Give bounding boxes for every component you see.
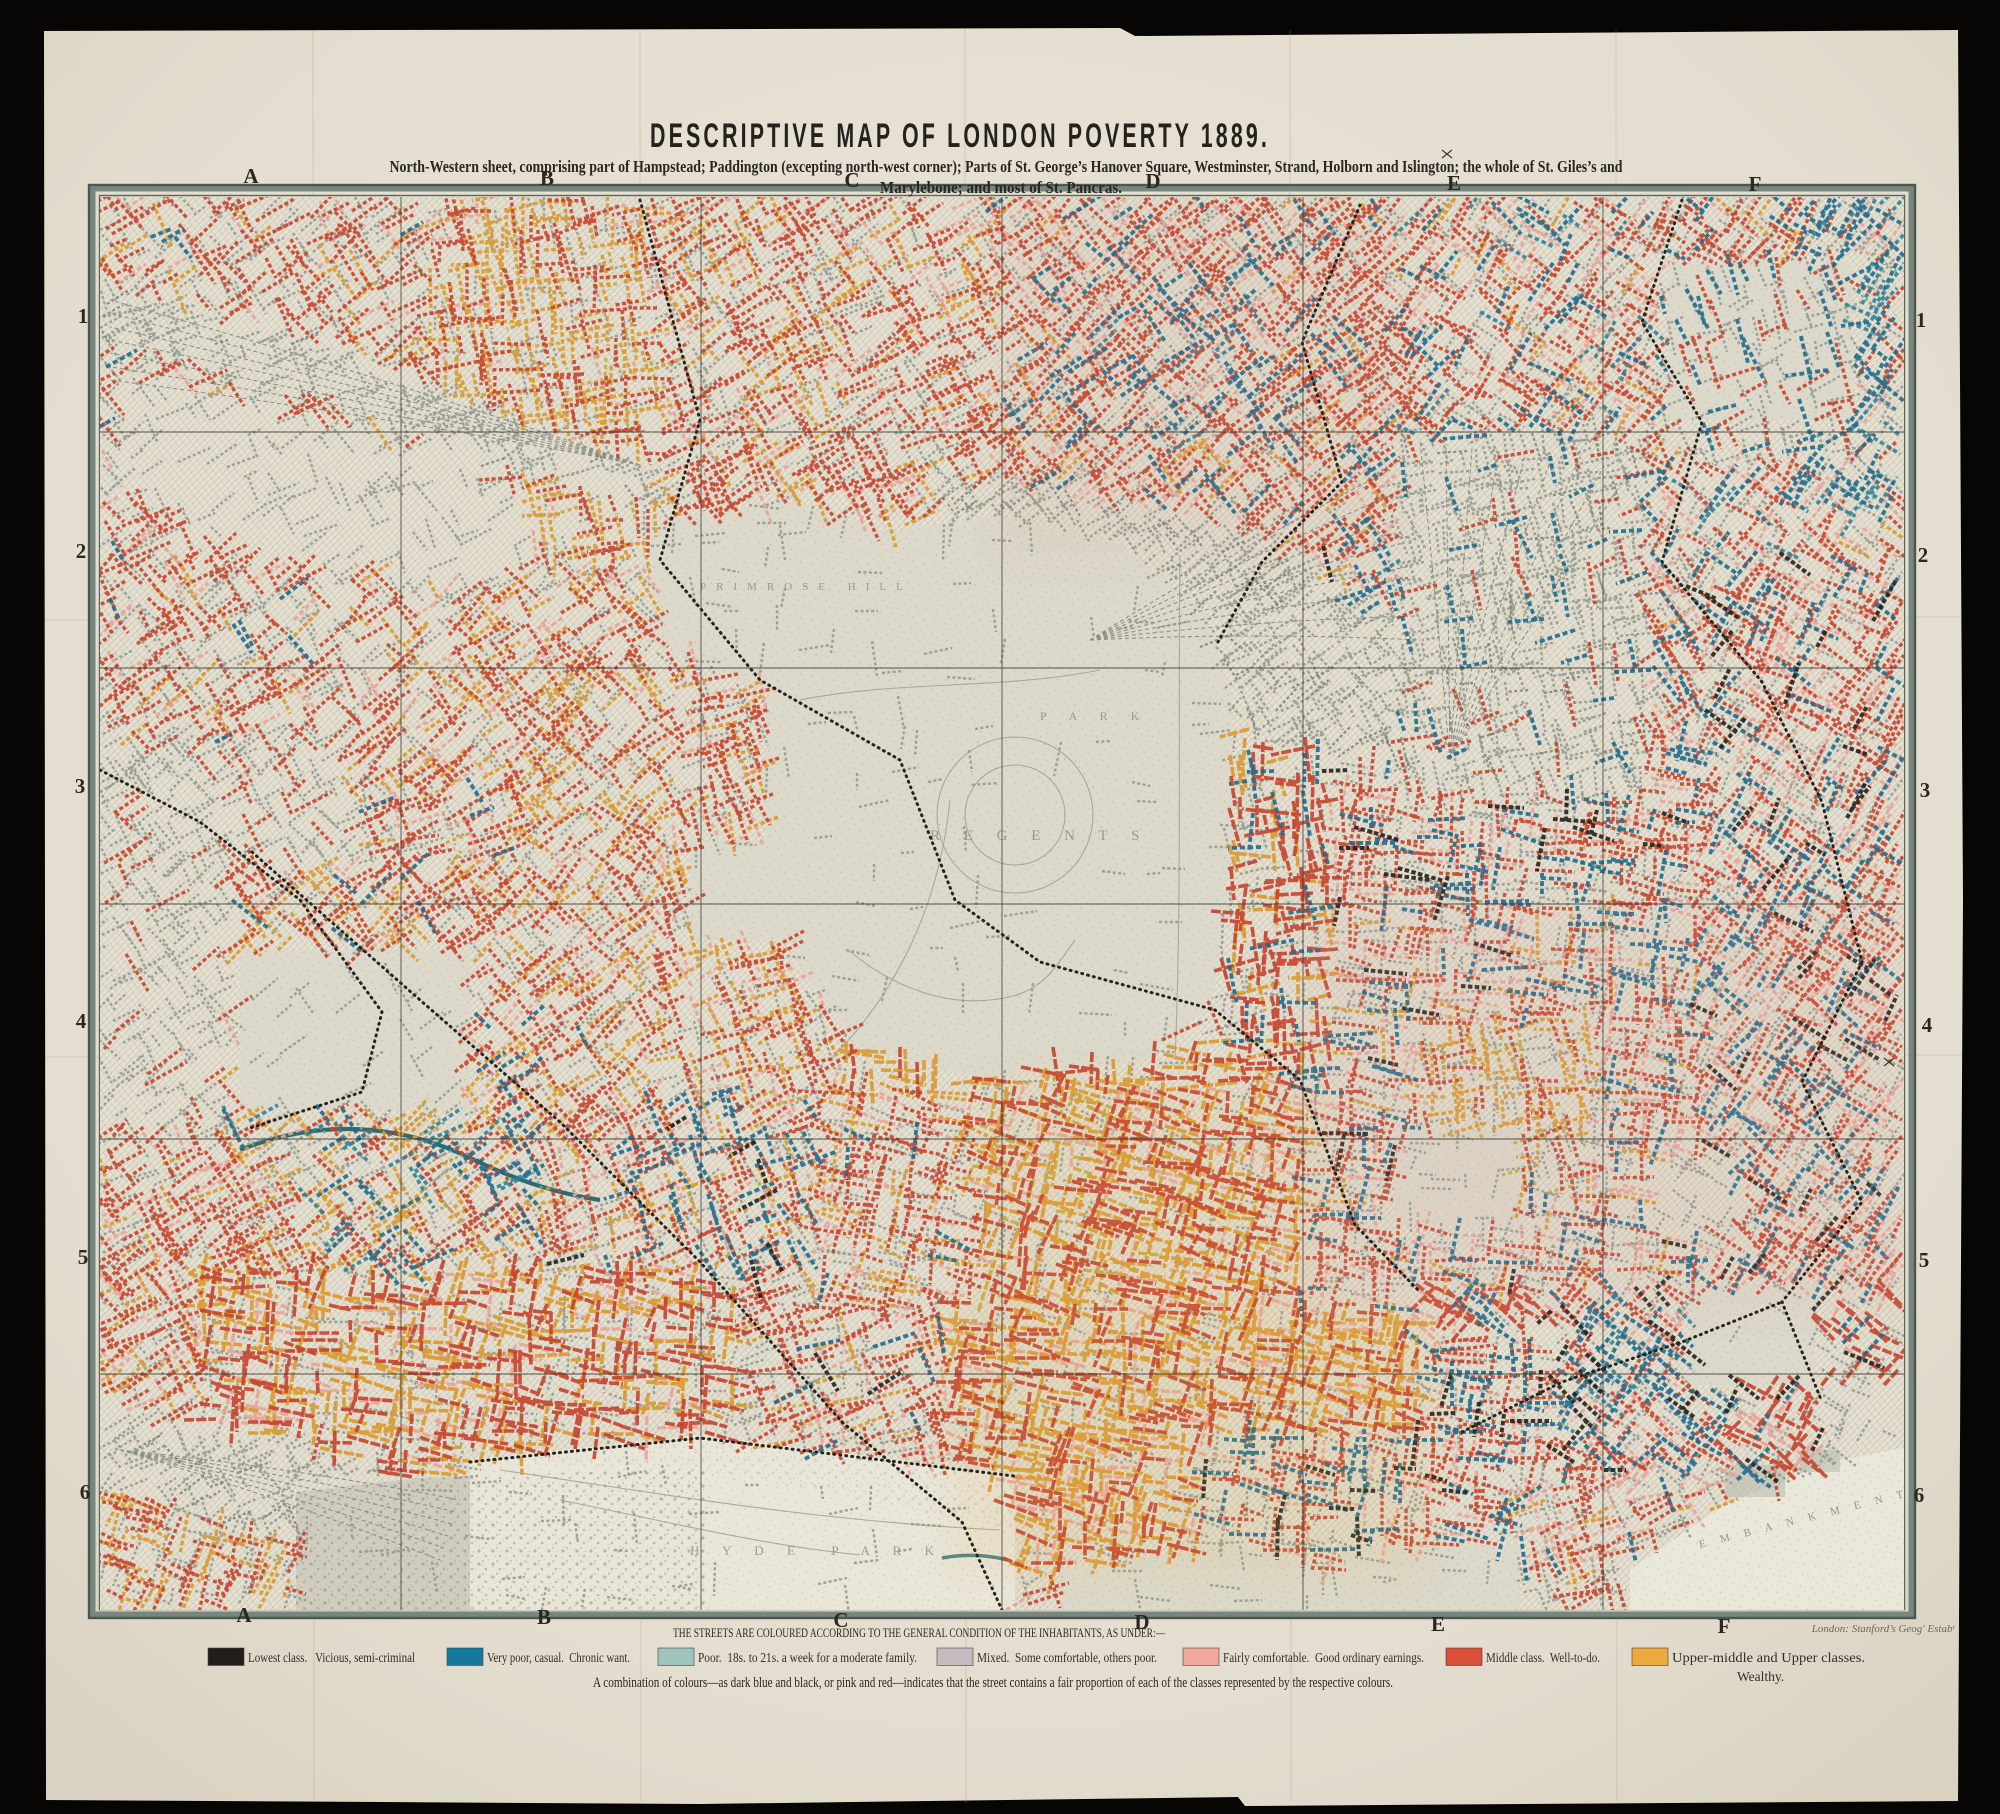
svg-text:B: B	[537, 1605, 551, 1629]
svg-text:E: E	[1447, 171, 1461, 195]
svg-text:2: 2	[1918, 543, 1929, 567]
svg-text:F: F	[1749, 172, 1762, 196]
svg-text:London: Stanford’s Geogʹ Estab: London: Stanford’s Geogʹ Estabᵗ	[1811, 1623, 1956, 1635]
svg-text:4: 4	[1922, 1013, 1933, 1037]
svg-text:D: D	[1145, 169, 1160, 193]
svg-text:Wealthy.: Wealthy.	[1737, 1669, 1784, 1684]
svg-text:PRIMROSE HILL: PRIMROSE HILL	[700, 581, 913, 593]
svg-text:A: A	[243, 164, 259, 188]
svg-text:E: E	[1431, 1612, 1445, 1636]
svg-text:B: B	[540, 166, 554, 190]
svg-text:THE STREETS ARE COLOURED ACCOR: THE STREETS ARE COLOURED ACCORDING TO TH…	[673, 1626, 1166, 1640]
svg-text:3: 3	[75, 774, 86, 798]
svg-text:4: 4	[76, 1009, 87, 1033]
svg-text:F: F	[1718, 1614, 1731, 1638]
svg-text:6: 6	[80, 1480, 91, 1504]
svg-text:A combination of colours—as da: A combination of colours—as dark blue an…	[593, 1675, 1393, 1691]
svg-text:1: 1	[78, 304, 89, 328]
svg-text:Very poor, casual. Chronic wa: Very poor, casual. Chronic want.	[487, 1650, 630, 1665]
svg-text:North-Western sheet, comprisin: North-Western sheet, comprising part of …	[390, 157, 1623, 176]
svg-text:A: A	[236, 1603, 252, 1627]
svg-text:5: 5	[1919, 1248, 1930, 1272]
svg-text:C: C	[844, 168, 859, 192]
svg-text:Lowest class. Vicious, semi-: Lowest class. Vicious, semi-criminal	[248, 1650, 415, 1665]
svg-text:R E G E N T S: R E G E N T S	[930, 828, 1149, 844]
svg-text:Marylebone; and most of St. Pa: Marylebone; and most of St. Pancras.	[880, 178, 1122, 197]
svg-text:Mixed. Some comfortable, othe: Mixed. Some comfortable, others poor.	[977, 1650, 1157, 1665]
svg-text:3: 3	[1920, 778, 1931, 802]
svg-text:1: 1	[1916, 308, 1927, 332]
svg-text:5: 5	[78, 1245, 89, 1269]
svg-text:Middle class. Well-to-do.: Middle class. Well-to-do.	[1486, 1650, 1600, 1665]
svg-text:2: 2	[76, 539, 87, 563]
svg-text:P A R K: P A R K	[1040, 709, 1149, 723]
svg-text:Upper-middle and Upper classes: Upper-middle and Upper classes.	[1672, 1650, 1865, 1665]
svg-text:Fairly comfortable. Good ordi: Fairly comfortable. Good ordinary earnin…	[1223, 1650, 1424, 1665]
svg-text:6: 6	[1914, 1483, 1925, 1507]
svg-text:DESCRIPTIVE MAP OF LONDON POVE: DESCRIPTIVE MAP OF LONDON POVERTY 1889.	[650, 117, 1270, 155]
svg-text:Poor. 18s. to 21s. a week for: Poor. 18s. to 21s. a week for a moderate…	[698, 1650, 917, 1665]
